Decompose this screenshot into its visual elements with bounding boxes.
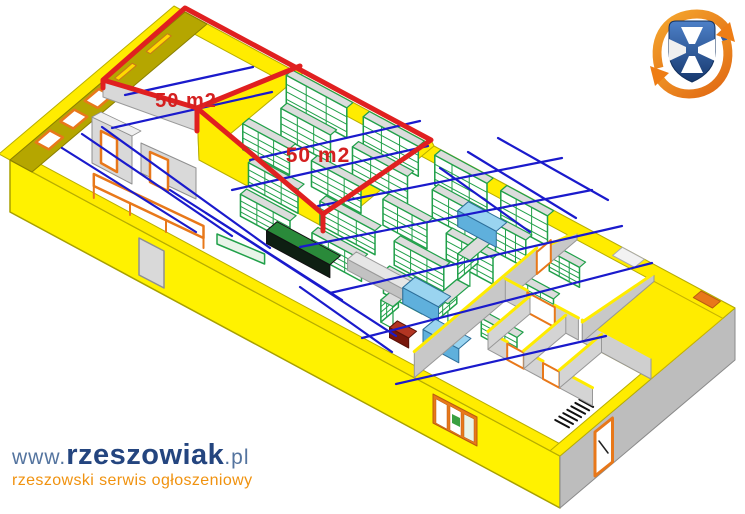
site-url: www.rzeszowiak.pl bbox=[12, 441, 253, 470]
site-tagline: rzeszowski serwis ogłoszeniowy bbox=[12, 471, 253, 490]
floor-plan-drawing: 50 m2 50 m2 bbox=[0, 0, 745, 514]
site-watermark: www.rzeszowiak.pl rzeszowski serwis ogło… bbox=[12, 441, 253, 490]
room-1-area-label: 50 m2 bbox=[155, 90, 217, 112]
room-2-area-label: 50 m2 bbox=[286, 144, 351, 167]
site-url-prefix: www. bbox=[12, 447, 66, 468]
listing-illustration: 50 m2 50 m2 bbox=[0, 0, 745, 514]
rzeszowiak-shield-logo bbox=[650, 14, 735, 94]
front-window-pane bbox=[464, 414, 474, 442]
site-url-name: rzeszowiak bbox=[66, 441, 224, 470]
site-url-tld: .pl bbox=[224, 447, 249, 468]
